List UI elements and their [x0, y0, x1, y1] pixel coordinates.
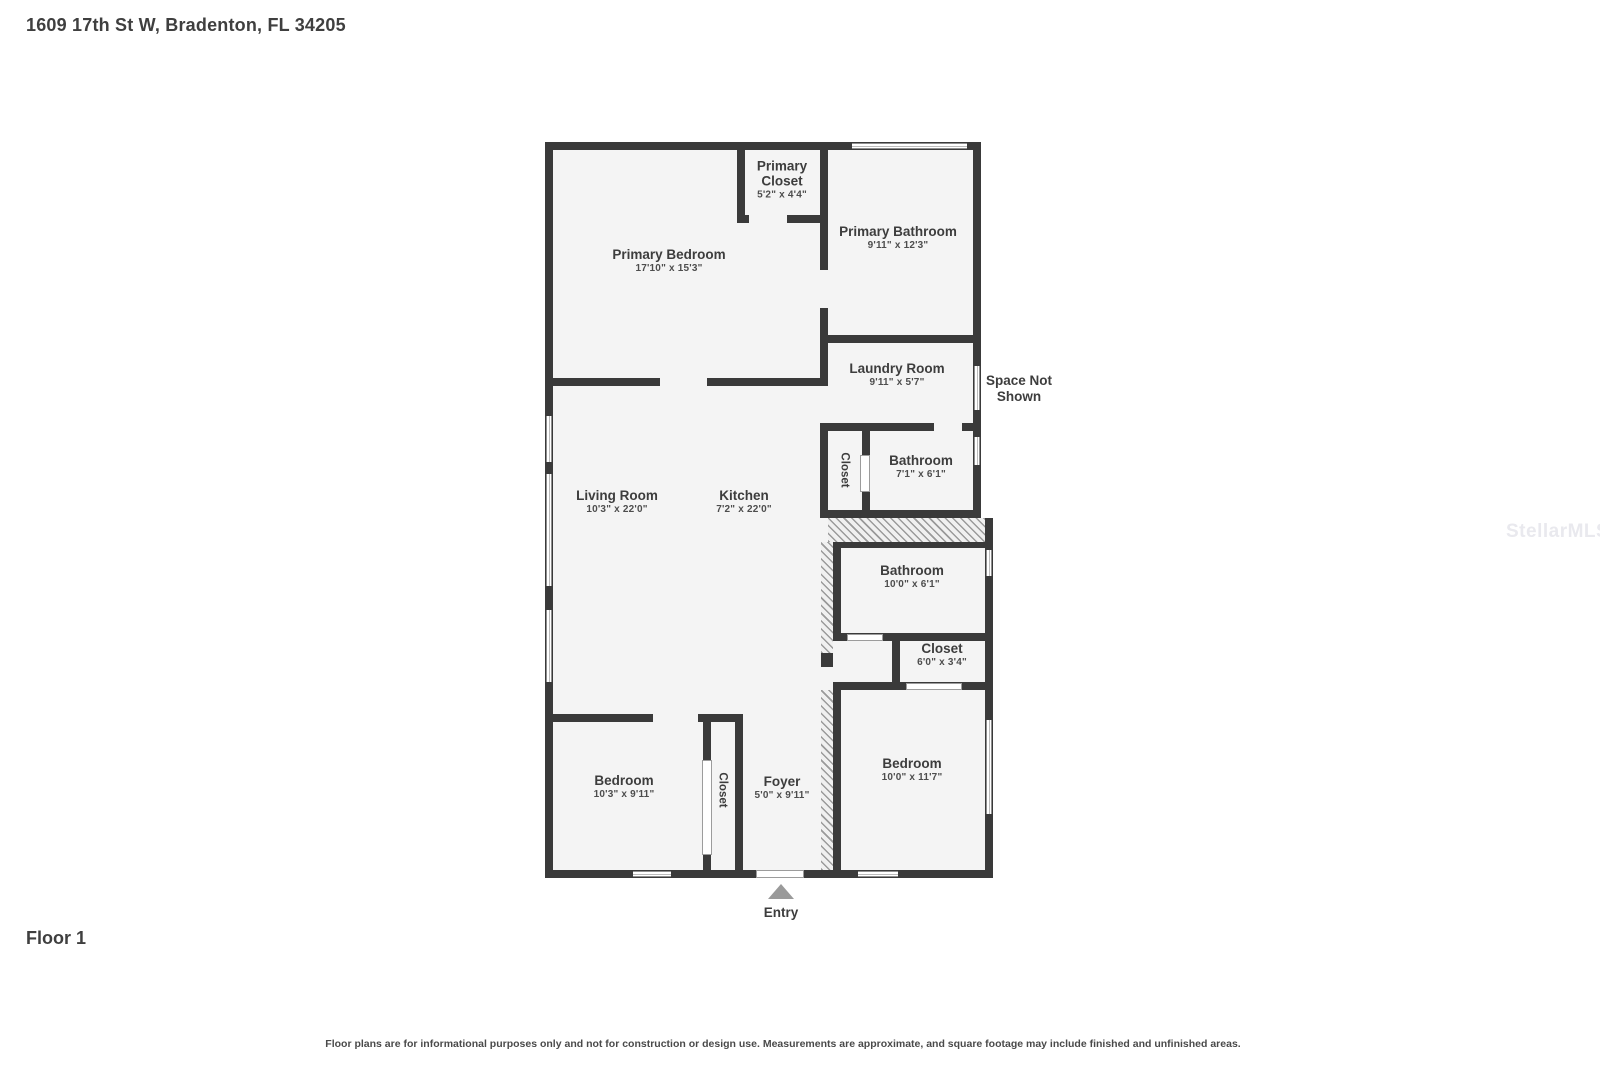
window-bedroom-right-bottom: [858, 871, 898, 877]
wall-bedroom-left-top: [545, 714, 743, 722]
door-closet-bedroom: [702, 760, 712, 855]
room-name: Bedroom: [594, 773, 655, 788]
door-hall-closet-bathroom: [860, 455, 870, 492]
room-name: Bathroom: [889, 453, 953, 468]
wall-laundry-top: [820, 335, 981, 343]
door-closet-main: [906, 683, 962, 690]
room-dims: 10'3" x 9'11": [594, 788, 655, 801]
room-label-bathroom-hall: Bathroom 7'1" x 6'1": [889, 453, 953, 481]
wall-hall-stub: [821, 653, 833, 667]
door-gap-primary-bathroom: [820, 270, 828, 308]
disclaimer-text: Floor plans are for informational purpos…: [0, 1038, 1566, 1050]
room-dims: 10'0" x 6'1": [880, 578, 944, 591]
room-name: Kitchen: [716, 488, 772, 503]
watermark: StellarMLS: [1506, 521, 1600, 543]
room-label-closet-hall: Closet: [837, 452, 852, 487]
room-name: Closet: [715, 772, 730, 807]
wall-bedroom-right-left: [833, 690, 841, 870]
room-dims: 5'0" x 9'11": [754, 789, 809, 802]
wall-hall-closet-left: [820, 423, 828, 518]
room-dims: 9'11" x 12'3": [839, 239, 957, 252]
page-title: 1609 17th St W, Bradenton, FL 34205: [26, 15, 346, 36]
room-name: Primary Closet: [741, 159, 823, 189]
room-dims: 10'3" x 22'0": [576, 503, 658, 516]
wall-hall-section-bottom: [820, 510, 981, 518]
room-dims: 6'0" x 3'4": [917, 656, 967, 669]
room-label-primary-bedroom: Primary Bedroom 17'10" x 15'3": [612, 247, 725, 275]
room-label-living-room: Living Room 10'3" x 22'0": [576, 488, 658, 516]
room-name: Closet: [917, 641, 967, 656]
window-primary-bathroom-top: [852, 143, 967, 149]
window-living-left-3: [546, 610, 552, 682]
door-gap-primary-bedroom: [660, 378, 707, 386]
room-dims: 7'2" x 22'0": [716, 503, 772, 516]
room-label-foyer: Foyer 5'0" x 9'11": [754, 774, 809, 802]
room-label-bedroom-left: Bedroom 10'3" x 9'11": [594, 773, 655, 801]
room-dims: 7'1" x 6'1": [889, 468, 953, 481]
room-name: Laundry Room: [849, 361, 944, 376]
room-dims: 5'2" x 4'4": [741, 189, 823, 202]
room-dims: 10'0" x 11'7": [882, 771, 943, 784]
room-name: Primary Bathroom: [839, 224, 957, 239]
room-label-primary-bathroom: Primary Bathroom 9'11" x 12'3": [839, 224, 957, 252]
door-gap-bedroom-left: [653, 714, 698, 722]
wall-bathroom-main-left: [833, 540, 841, 641]
room-label-bedroom-right: Bedroom 10'0" x 11'7": [882, 756, 943, 784]
floor-number-label: Floor 1: [26, 928, 86, 949]
door-bathroom-main: [847, 634, 883, 641]
room-label-closet-bedroom: Closet: [715, 772, 730, 807]
door-gap-primary-closet: [749, 215, 787, 223]
window-living-left-1: [546, 416, 552, 462]
entry-label: Entry: [764, 905, 799, 920]
hatch-strip-vertical-lower: [821, 690, 833, 870]
room-label-primary-closet: Primary Closet 5'2" x 4'4": [741, 159, 823, 202]
door-entry: [756, 870, 804, 878]
space-not-shown-label: Space Not Shown: [973, 373, 1065, 404]
room-name: Primary Bedroom: [612, 247, 725, 262]
window-bedroom-left-bottom: [633, 871, 671, 877]
room-name: Foyer: [754, 774, 809, 789]
room-label-closet-main: Closet 6'0" x 3'4": [917, 641, 967, 669]
hatch-strip-vertical-upper: [821, 542, 833, 653]
room-label-bathroom-main: Bathroom 10'0" x 6'1": [880, 563, 944, 591]
window-bedroom-right-side: [986, 720, 992, 814]
hatch-strip-horizontal: [828, 518, 985, 542]
window-living-left-2: [546, 474, 552, 586]
room-dims: 9'11" x 5'7": [849, 376, 944, 389]
room-label-laundry-room: Laundry Room 9'11" x 5'7": [849, 361, 944, 389]
room-name: Bathroom: [880, 563, 944, 578]
room-name: Closet: [837, 452, 852, 487]
wall-closet-bedroom-right: [735, 714, 743, 870]
room-label-kitchen: Kitchen 7'2" x 22'0": [716, 488, 772, 516]
room-name: Bedroom: [882, 756, 943, 771]
room-dims: 17'10" x 15'3": [612, 262, 725, 275]
door-gap-bathroom-hall: [934, 423, 962, 431]
room-name: Living Room: [576, 488, 658, 503]
entry-arrow-icon: [768, 884, 794, 899]
window-bathroom-hall-right: [974, 437, 980, 465]
window-bathroom-main-right: [986, 550, 992, 576]
